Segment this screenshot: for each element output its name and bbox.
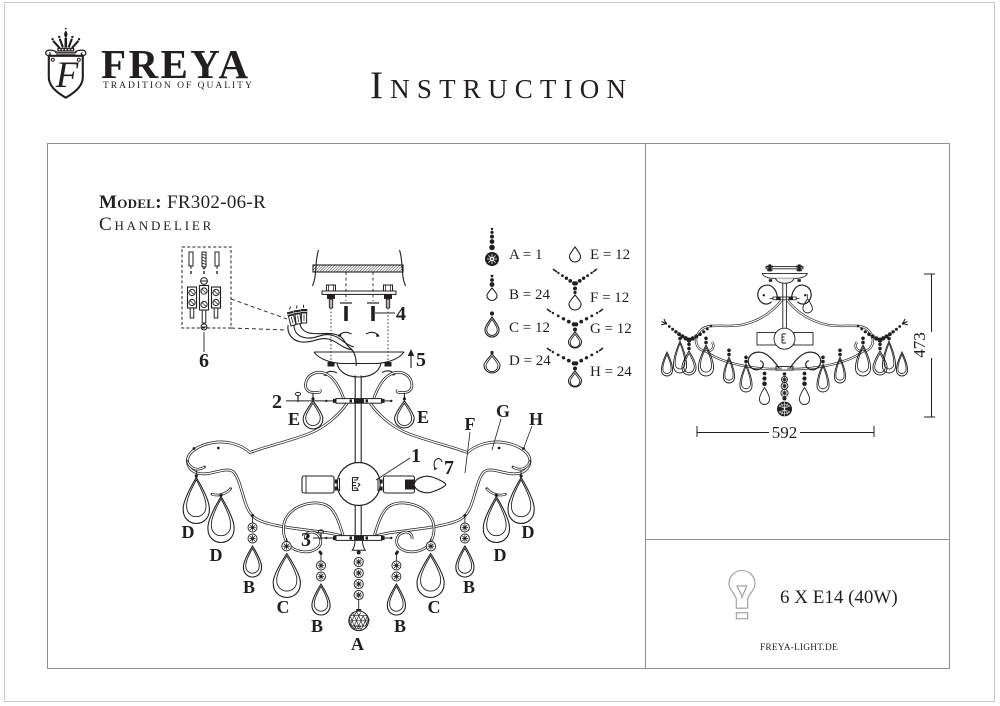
svg-text:B: B (311, 616, 323, 636)
svg-text:B = 24: B = 24 (509, 287, 550, 303)
svg-text:D: D (182, 522, 195, 542)
svg-text:2: 2 (272, 391, 282, 413)
svg-text:FREYA-LIGHT.DE: FREYA-LIGHT.DE (760, 643, 838, 653)
svg-text:473: 473 (910, 332, 929, 358)
svg-text:592: 592 (772, 423, 798, 442)
svg-text:4: 4 (396, 303, 406, 325)
svg-text:D: D (210, 545, 223, 565)
svg-text:A = 1: A = 1 (509, 247, 542, 263)
svg-text:F: F (465, 414, 476, 434)
svg-text:E: E (288, 409, 300, 429)
svg-text:B: B (243, 577, 255, 597)
svg-text:1: 1 (411, 445, 421, 467)
svg-text:D: D (494, 545, 507, 565)
svg-text:3: 3 (301, 529, 311, 551)
svg-text:D: D (522, 522, 535, 542)
svg-text:H: H (529, 409, 543, 429)
svg-text:B: B (463, 577, 475, 597)
svg-text:7: 7 (444, 457, 454, 479)
svg-text:A: A (351, 634, 364, 654)
svg-text:C = 12: C = 12 (509, 320, 550, 336)
svg-text:G: G (496, 401, 510, 421)
svg-text:C: C (428, 597, 441, 617)
svg-text:H = 24: H = 24 (590, 364, 632, 380)
svg-text:B: B (394, 616, 406, 636)
svg-text:6: 6 (199, 350, 209, 372)
svg-text:G = 12: G = 12 (590, 321, 632, 337)
svg-text:F = 12: F = 12 (590, 290, 629, 306)
svg-text:E: E (417, 407, 429, 427)
svg-text:D = 24: D = 24 (509, 353, 551, 369)
svg-text:5: 5 (416, 349, 426, 371)
svg-text:C: C (277, 597, 290, 617)
svg-text:6 X E14 (40W): 6 X E14 (40W) (780, 587, 898, 608)
svg-text:E = 12: E = 12 (590, 247, 630, 263)
svg-text:F: F (55, 55, 79, 96)
